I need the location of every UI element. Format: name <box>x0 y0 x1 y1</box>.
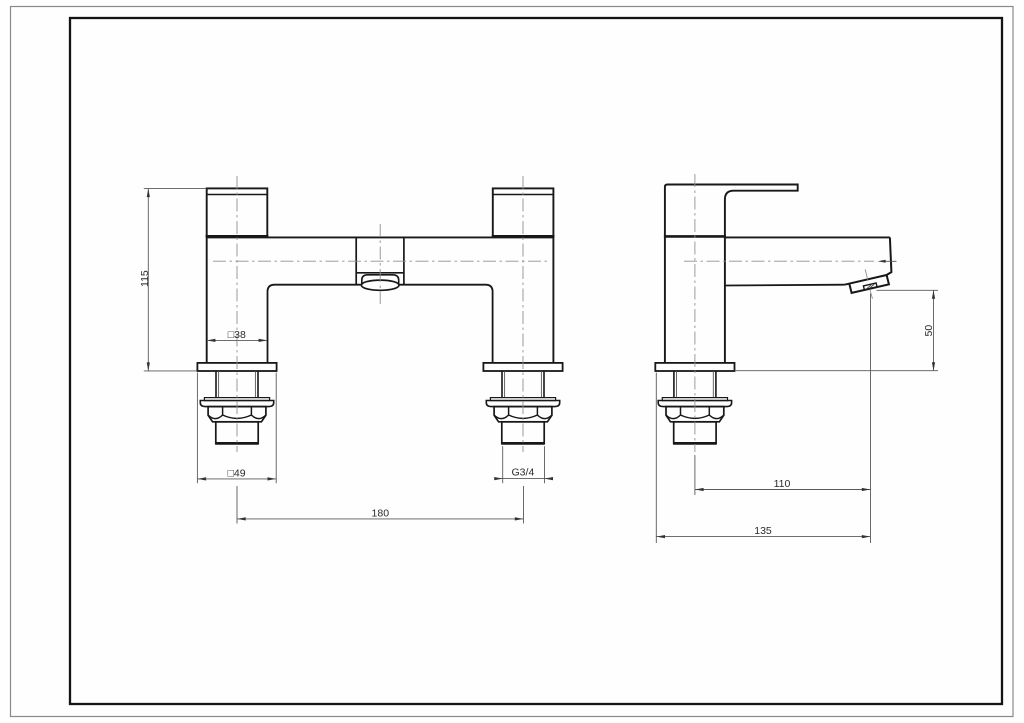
svg-text:□38: □38 <box>228 329 246 341</box>
svg-text:115: 115 <box>139 270 151 287</box>
svg-text:50: 50 <box>923 325 935 337</box>
svg-text:110: 110 <box>774 478 791 490</box>
svg-text:G3/4: G3/4 <box>512 467 535 479</box>
svg-text:180: 180 <box>372 507 390 519</box>
svg-text:□49: □49 <box>228 468 246 480</box>
svg-text:135: 135 <box>754 525 772 537</box>
